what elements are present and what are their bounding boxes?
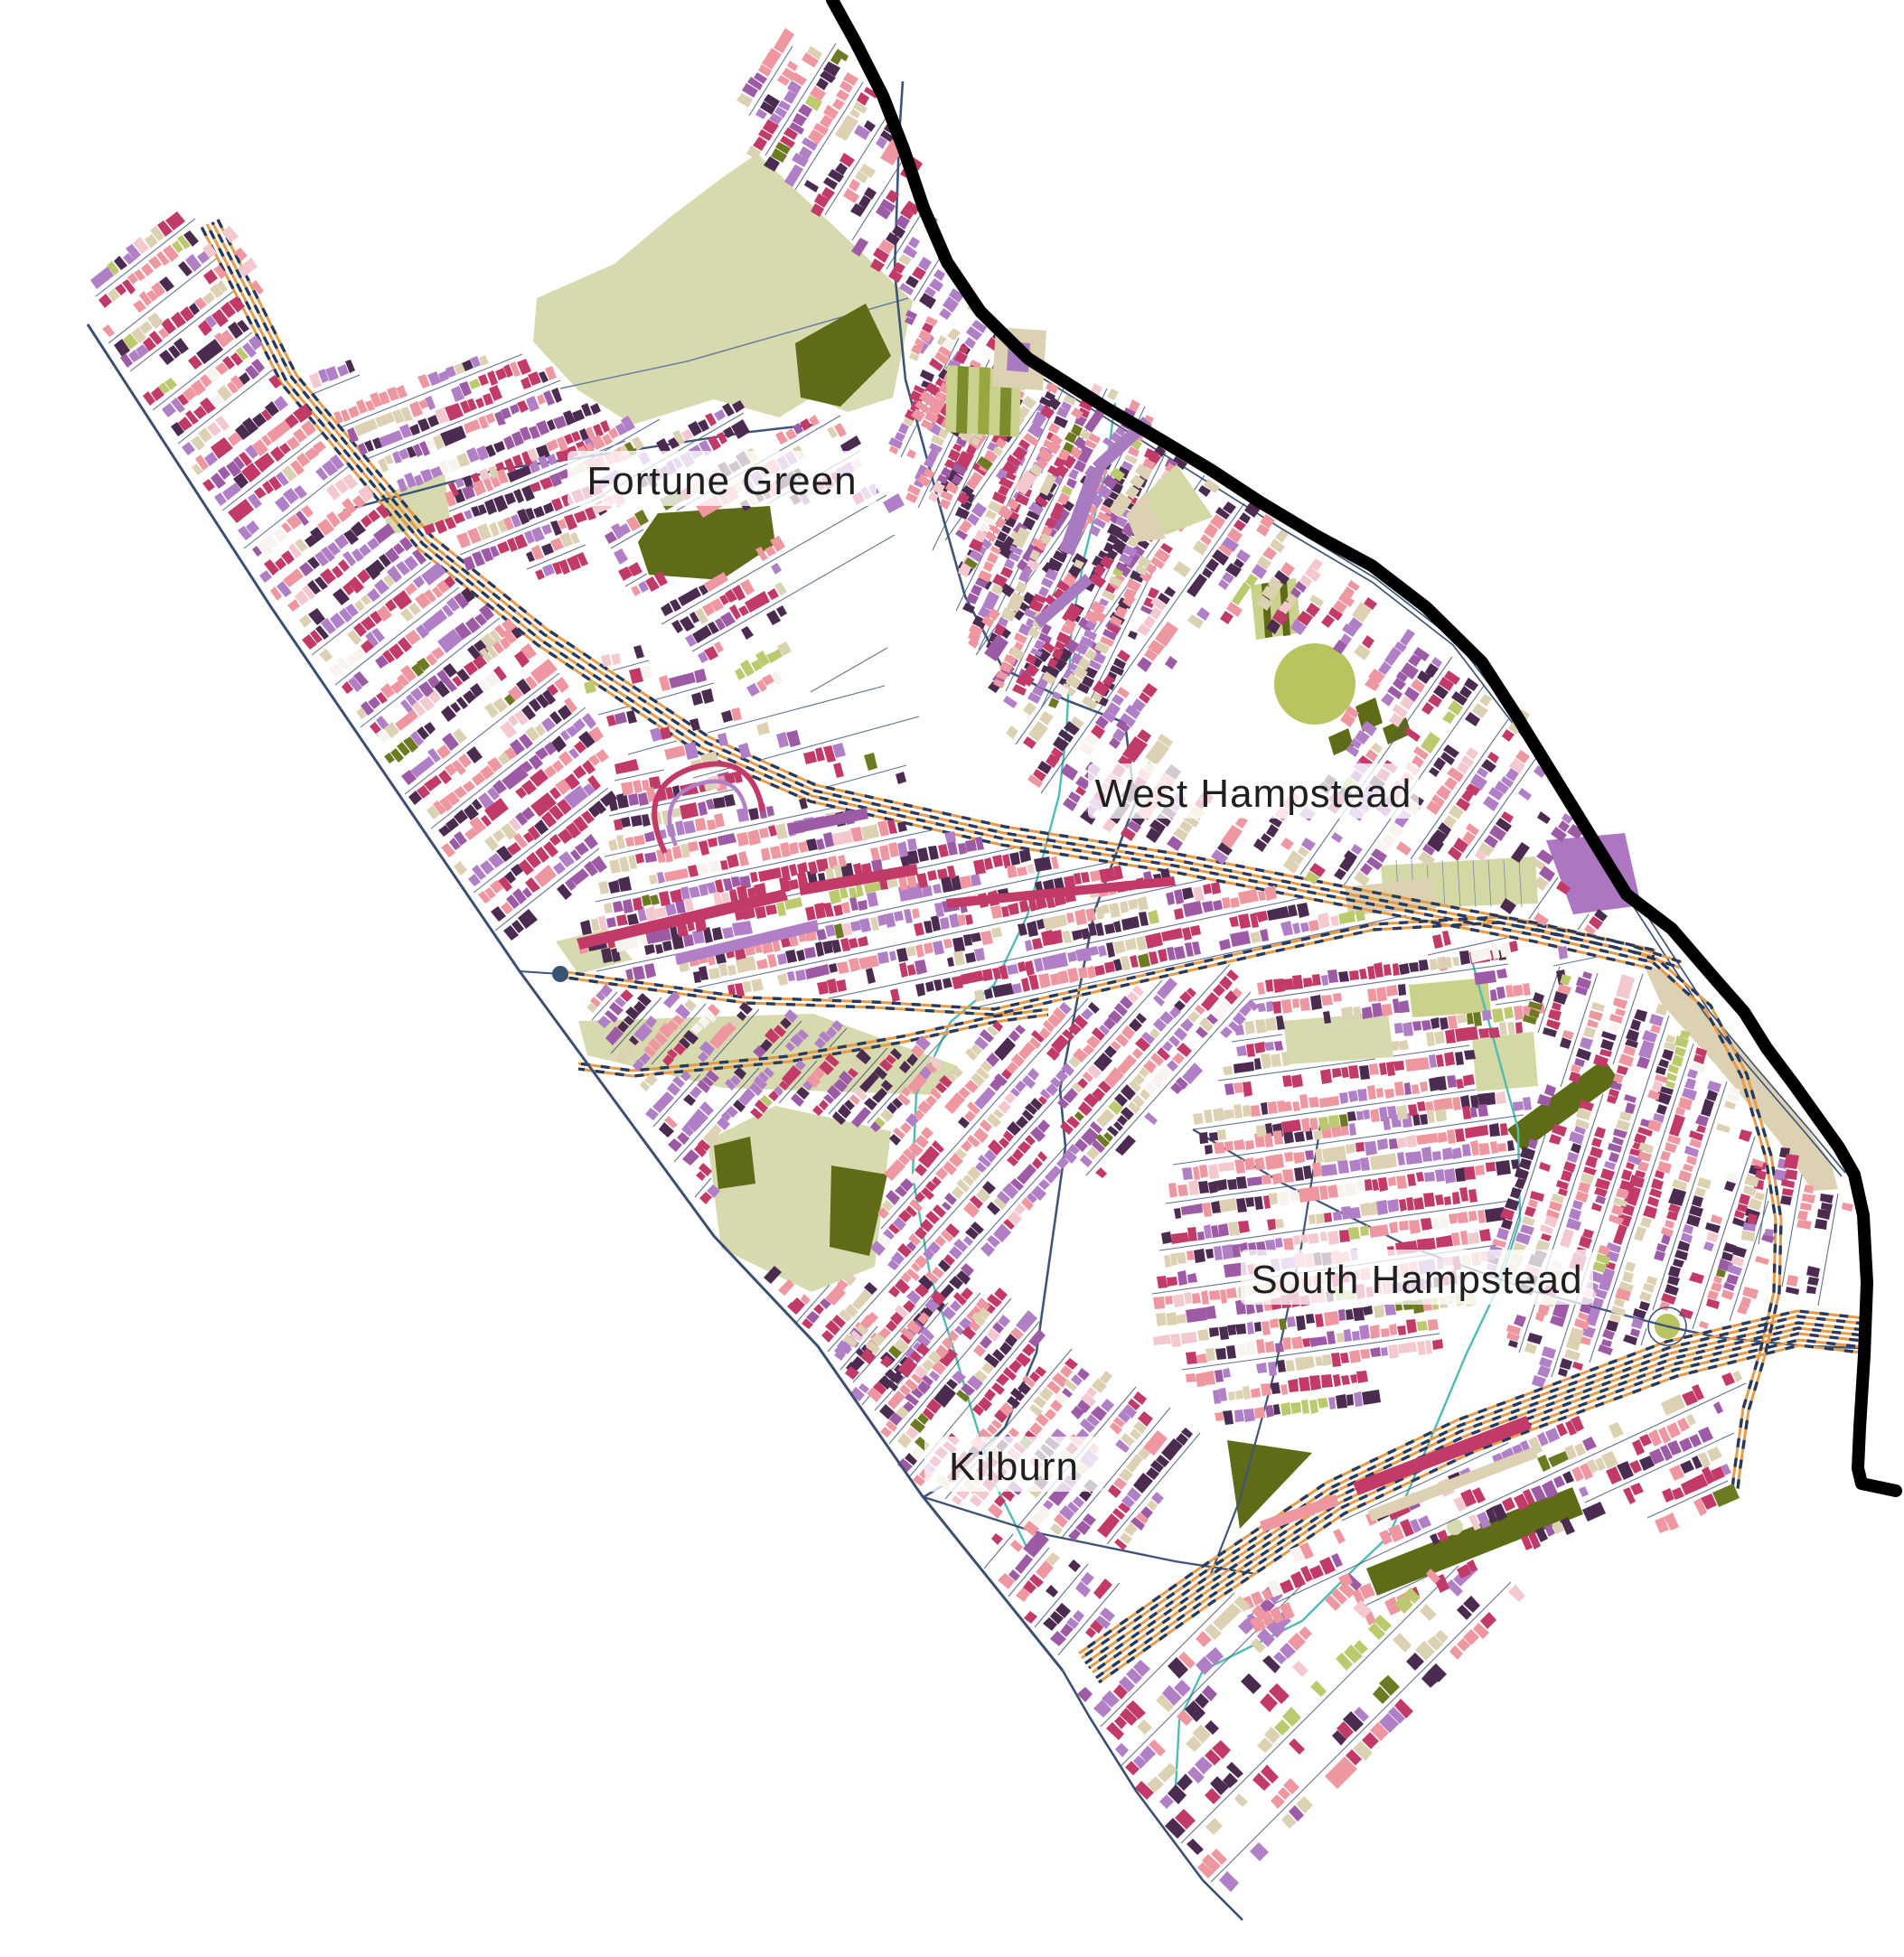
svg-text:West Hampstead: West Hampstead — [1095, 772, 1412, 816]
svg-text:South Hampstead: South Hampstead — [1251, 1258, 1582, 1302]
svg-text:Kilburn: Kilburn — [949, 1445, 1079, 1489]
svg-text:Fortune Green: Fortune Green — [586, 459, 857, 503]
